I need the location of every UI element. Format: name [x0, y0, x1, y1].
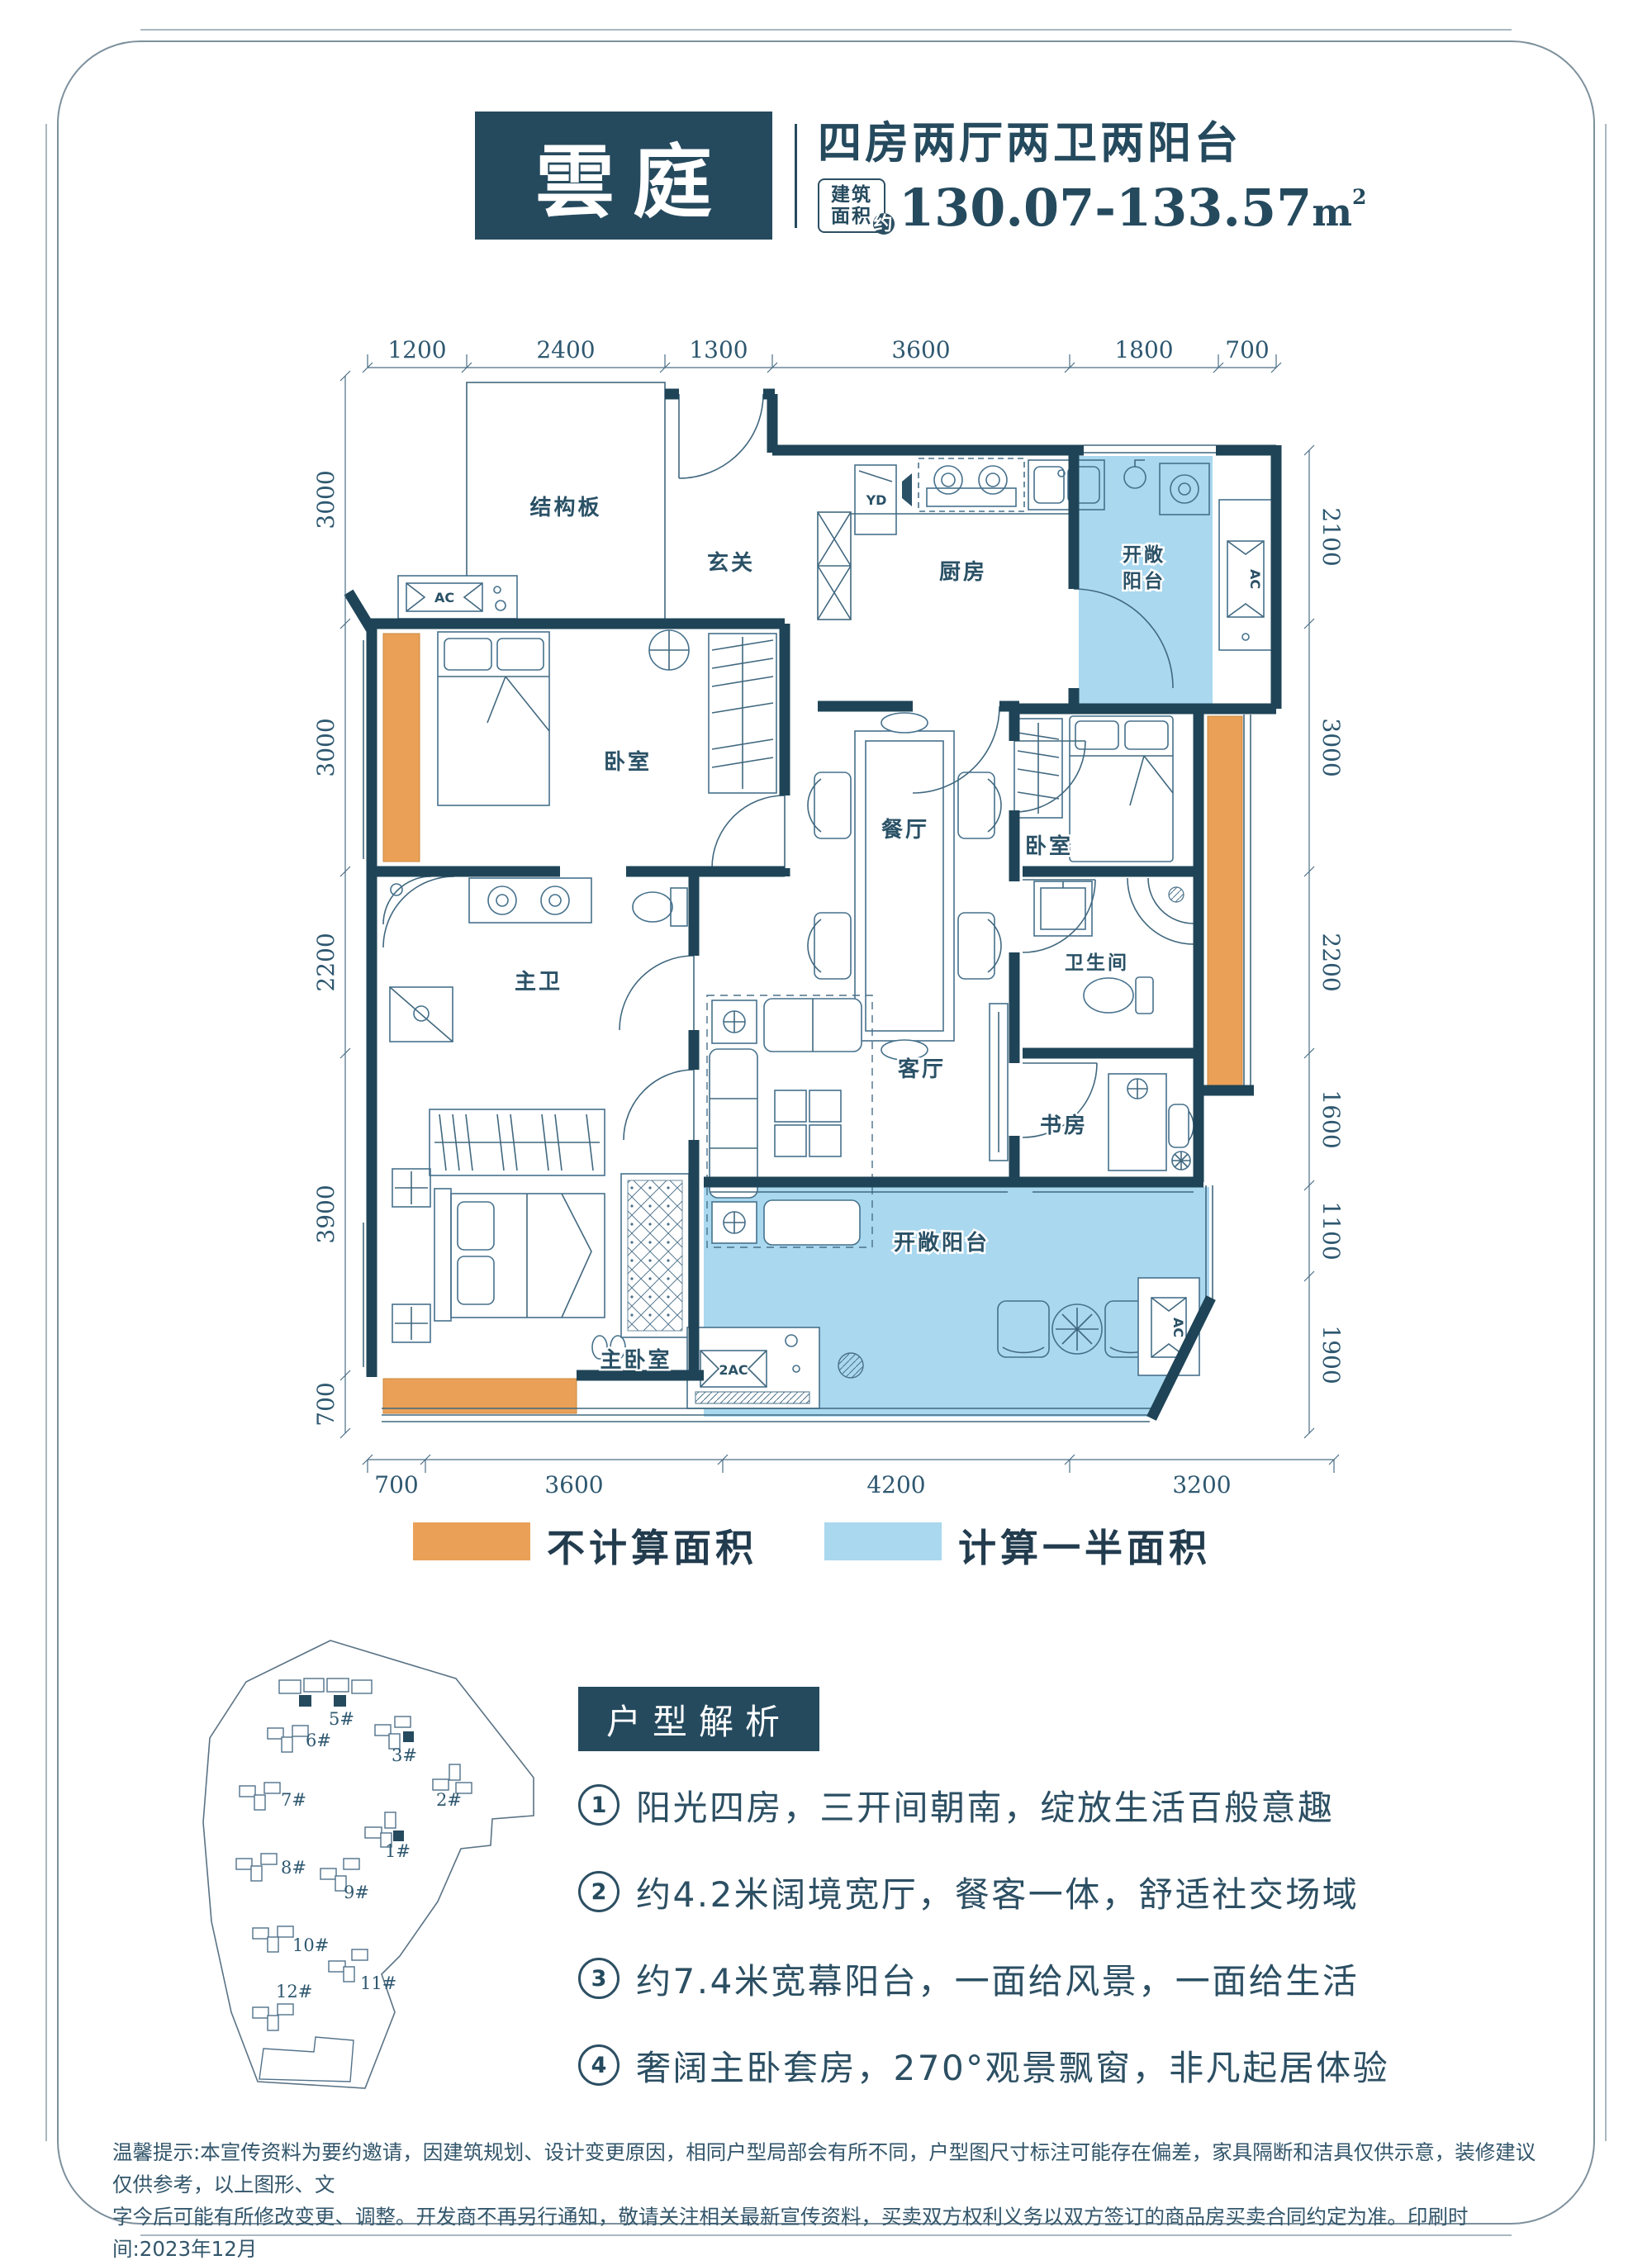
bath-fixtures: [1023, 878, 1194, 1014]
legend-swatch-blue: [824, 1522, 942, 1560]
flyer-page: 雲庭 四房两厅两卫两阳台 建筑 面积 约 130.07-133.57m2: [0, 0, 1652, 2265]
building-6: [268, 1726, 308, 1752]
svg-text:AC: AC: [1247, 569, 1263, 589]
dim-bottom-3: 3200: [1172, 1471, 1231, 1498]
analysis-num-2: 2: [578, 1871, 619, 1912]
disclaimer-line1: 温馨提示:本宣传资料为要约邀请，因建筑规划、设计变更原因，相同户型局部会有所不同…: [112, 2136, 1541, 2201]
analysis-item: 2 约4.2米阔境宽厅，餐客一体，舒适社交场域: [578, 1868, 1503, 1916]
room-dining: 餐厅: [881, 818, 929, 843]
ac-platform-top-left: AC: [398, 576, 517, 619]
building-12: [253, 2004, 293, 2030]
building-3: [375, 1717, 414, 1749]
dim-right-3: 1600: [1317, 1090, 1345, 1148]
dim-bottom-1: 3600: [544, 1471, 603, 1498]
analysis-item: 1 阳光四房，三开间朝南，绽放生活百般意趣: [578, 1781, 1503, 1829]
room-study: 书房: [1040, 1114, 1088, 1138]
building-7: [240, 1783, 280, 1810]
bay-window-right: [1208, 716, 1242, 1086]
legend-label-blue: 计算一半面积: [958, 1518, 1211, 1573]
building-5-label: 5#: [329, 1709, 354, 1729]
building-11-label: 11#: [360, 1973, 396, 1993]
dim-top-3: 3600: [891, 336, 950, 363]
room-bedroom-left: 卧室: [604, 749, 652, 775]
dim-top-4: 1800: [1114, 336, 1173, 363]
analysis-text-2: 约4.2米阔境宽厅，餐客一体，舒适社交场域: [636, 1867, 1359, 1917]
building-7-label: 7#: [281, 1790, 306, 1810]
area-row: 建筑 面积 约 130.07-133.57m2: [818, 178, 1366, 233]
title-divider: [795, 124, 797, 228]
site-plan: 5# 6# 3# 2# 7# 1# 8# 9#: [106, 1629, 577, 2125]
master-bath-fixtures: [383, 876, 694, 1042]
analysis-num-3: 3: [578, 1958, 619, 1999]
dim-top-1: 2400: [536, 336, 595, 363]
room-balcony-top-1: 开敞: [1123, 544, 1165, 566]
bedroom-left-furniture: [438, 630, 785, 868]
ac-niche-top-right: AC: [1219, 500, 1272, 650]
room-master-bath: 主卫: [515, 970, 563, 995]
building-10: [253, 1926, 293, 1952]
room-balcony-top-2: 阳台: [1123, 570, 1165, 592]
building-1-label: 1#: [385, 1841, 411, 1861]
master-suite-furniture: [392, 1070, 694, 1359]
analysis-list: 1 阳光四房，三开间朝南，绽放生活百般意趣 2 约4.2米阔境宽厅，餐客一体，舒…: [578, 1781, 1503, 2128]
area-badge-line1: 建筑: [831, 184, 872, 206]
site-boundary: [203, 1641, 534, 2088]
analysis-item: 4 奢阔主卧套房，270°观景飘窗，非凡起居体验: [578, 2041, 1503, 2089]
area-approx-circle: 约: [873, 213, 895, 235]
fridge-yd: YD: [855, 465, 912, 534]
layout-subtitle: 四房两厅两卫两阳台: [818, 114, 1366, 172]
room-entry: 玄关: [707, 550, 755, 576]
room-bedroom-right: 卧室: [1025, 833, 1073, 859]
analysis-text-4: 奢阔主卧套房，270°观景飘窗，非凡起居体验: [636, 2040, 1389, 2091]
dim-right-2: 2200: [1317, 933, 1345, 991]
door-wedge: [902, 473, 912, 506]
analysis-item: 3 约7.4米宽幕阳台，一面给风景，一面给生活: [578, 1954, 1503, 2002]
project-name: 雲庭: [535, 118, 730, 233]
dim-left-4: 700: [312, 1382, 339, 1426]
analysis-num-4: 4: [578, 2044, 619, 2086]
dim-top-0: 1200: [387, 336, 446, 363]
building-2: [433, 1764, 472, 1793]
analysis-text-1: 阳光四房，三开间朝南，绽放生活百般意趣: [636, 1780, 1335, 1831]
dim-left-2: 2200: [312, 933, 339, 991]
building-3-label: 3#: [392, 1745, 417, 1765]
area-unit: m: [1312, 190, 1352, 235]
room-master-bedroom: 主卧室: [600, 1347, 672, 1373]
ac2-platform: 2AC: [687, 1327, 819, 1408]
legend-label-orange: 不计算面积: [547, 1518, 757, 1573]
building-5: [279, 1679, 372, 1707]
kitchen-fixtures: [851, 458, 1104, 514]
bay-window-left: [383, 634, 420, 862]
building-6-label: 6#: [306, 1731, 331, 1750]
room-balcony-bottom: 开敞阳台: [894, 1230, 990, 1256]
title-info: 四房两厅两卫两阳台 建筑 面积 约 130.07-133.57m2: [818, 114, 1366, 233]
dim-top-2: 1300: [689, 336, 748, 363]
dim-bottom-2: 4200: [866, 1471, 925, 1498]
podium-building: [259, 2037, 354, 2082]
dim-right-0: 2100: [1317, 507, 1345, 566]
svg-text:YD: YD: [866, 492, 887, 508]
area-unit-sup: 2: [1352, 185, 1366, 209]
analysis-text-3: 约7.4米宽幕阳台，一面给风景，一面给生活: [636, 1954, 1359, 2004]
analysis-num-1: 1: [578, 1784, 619, 1826]
ac-platform-bottom-right: AC: [1138, 1278, 1199, 1375]
building-8-label: 8#: [281, 1858, 306, 1878]
area-badge-line2: 面积: [831, 206, 872, 227]
building-9-label: 9#: [344, 1883, 369, 1902]
dim-bottom-0: 700: [374, 1471, 418, 1498]
dim-left-3: 3900: [312, 1185, 339, 1243]
project-name-box: 雲庭: [475, 112, 772, 240]
floor-plan: AC YD: [314, 343, 1355, 1508]
disclaimer: 温馨提示:本宣传资料为要约邀请，因建筑规划、设计变更原因，相同户型局部会有所不同…: [112, 2136, 1541, 2265]
building-10-label: 10#: [292, 1935, 329, 1955]
area-badge: 建筑 面积 约: [818, 178, 885, 233]
room-structural-slab: 结构板: [529, 496, 601, 520]
analysis-title: 户型解析: [578, 1687, 819, 1751]
disclaimer-line2: 字今后可能有所修改变更、调整。开发商不再另行通知，敬请关注相关最新宣传资料，买卖…: [112, 2201, 1541, 2265]
legend-swatch-orange: [413, 1522, 530, 1560]
dim-right-5: 1900: [1317, 1325, 1345, 1384]
building-12-label: 12#: [276, 1982, 312, 2001]
dim-right-4: 1100: [1317, 1201, 1345, 1260]
building-8: [236, 1854, 277, 1881]
svg-text:2AC: 2AC: [719, 1362, 748, 1378]
room-kitchen: 厨房: [939, 560, 987, 585]
entry-door-arc: [679, 394, 763, 478]
dim-left-1: 3000: [312, 718, 339, 776]
room-bath: 卫生间: [1065, 952, 1129, 974]
dim-right-1: 3000: [1317, 718, 1345, 776]
dim-top-5: 700: [1225, 336, 1269, 363]
area-value: 130.07-133.57m2: [899, 184, 1366, 233]
svg-text:AC: AC: [1170, 1318, 1186, 1337]
vent-shaft: [818, 512, 851, 620]
dim-left-0: 3000: [312, 470, 339, 529]
svg-text:AC: AC: [434, 590, 454, 605]
building-2-label: 2#: [436, 1790, 462, 1810]
room-living: 客厅: [898, 1057, 946, 1082]
